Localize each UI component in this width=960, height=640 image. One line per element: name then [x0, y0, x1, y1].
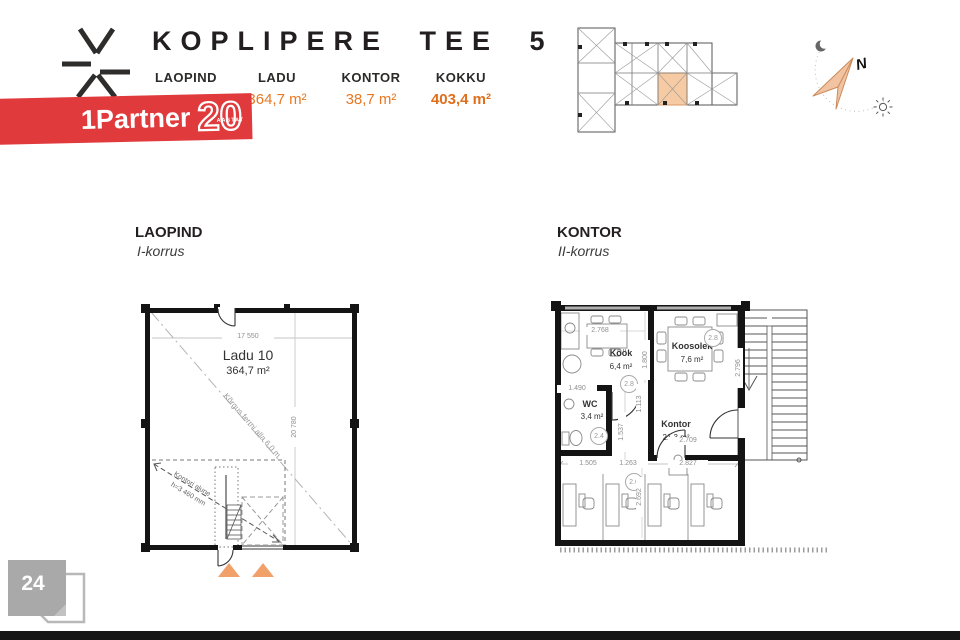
page-title: KOPLIPERE TEE 5	[152, 26, 554, 57]
kokku-area-value: 403,4 m²	[406, 91, 516, 108]
warehouse-room-label: Ladu 10	[188, 347, 308, 363]
bottom-door	[218, 550, 233, 566]
dim-bottom-c: 2.827	[668, 460, 708, 468]
partner-banner: 1Partner 20AASTAT	[0, 93, 252, 145]
kontor-label: Kontor	[636, 419, 716, 429]
partner-badge-subtext: AASTAT	[216, 102, 244, 139]
north-arrow-icon	[813, 58, 853, 109]
right-plan-title: KONTOR	[557, 224, 622, 241]
wc-room-tag: 2.4	[590, 427, 608, 445]
dim-bottom-a: 1.505	[568, 460, 608, 468]
dim-top: 2.768	[580, 327, 620, 335]
dim-mid-b: 1.537	[618, 412, 626, 452]
entrance-marker-triangle	[252, 563, 274, 577]
width-dimension-label: 17 550	[222, 333, 274, 341]
window-strip	[657, 307, 731, 310]
sun-icon	[874, 98, 893, 117]
compass-rose	[795, 28, 900, 120]
brochure-page: KOPLIPERE TEE 5 LAOPIND LADU KONTOR KOKK…	[0, 0, 960, 640]
dim-koosolek-bottom: 2.709	[668, 437, 708, 445]
office-floor-plan: Köök 6,4 m² Koosolek 7,6 m² WC 3,4 m² Ko…	[545, 288, 845, 568]
koosolek-area: 7,6 m²	[652, 355, 732, 364]
stairwell	[738, 310, 807, 462]
dim-kook-right: 1.800	[642, 340, 650, 380]
moon-icon	[816, 39, 830, 51]
right-plan-subtitle: II-korrus	[558, 243, 609, 259]
partner-brand-text: 1Partner	[81, 102, 191, 135]
overhead-door-zone	[242, 497, 283, 545]
dim-koosolek-right: 2.796	[735, 348, 743, 388]
col-kokku-header: KOKKU	[406, 70, 516, 85]
development-logo-icon	[55, 20, 135, 98]
dim-office-v: 2.692	[636, 477, 644, 517]
wc-label: WC	[560, 399, 620, 409]
footer-bar	[0, 631, 960, 640]
window-strip	[565, 307, 640, 310]
page-number: 24	[4, 572, 62, 596]
partner-20-badge: 20AASTAT	[197, 98, 242, 135]
dim-bottom-b: 1.263	[608, 460, 648, 468]
dim-wc-top: 1.490	[557, 385, 597, 393]
koosolek-room-tag: 2.8	[704, 329, 722, 347]
wc-area: 3,4 m²	[562, 412, 622, 421]
left-plan-subtitle: I-korrus	[137, 243, 184, 259]
left-plan-title: LAOPIND	[135, 224, 203, 241]
warehouse-floor-plan: Ladu 10 364,7 m² 17 550 20 780 Kõrgus fe…	[130, 295, 380, 595]
height-dimension-label: 20 780	[291, 407, 299, 447]
site-plan-overview	[565, 15, 795, 145]
dim-mid-a: 1.113	[636, 384, 644, 424]
